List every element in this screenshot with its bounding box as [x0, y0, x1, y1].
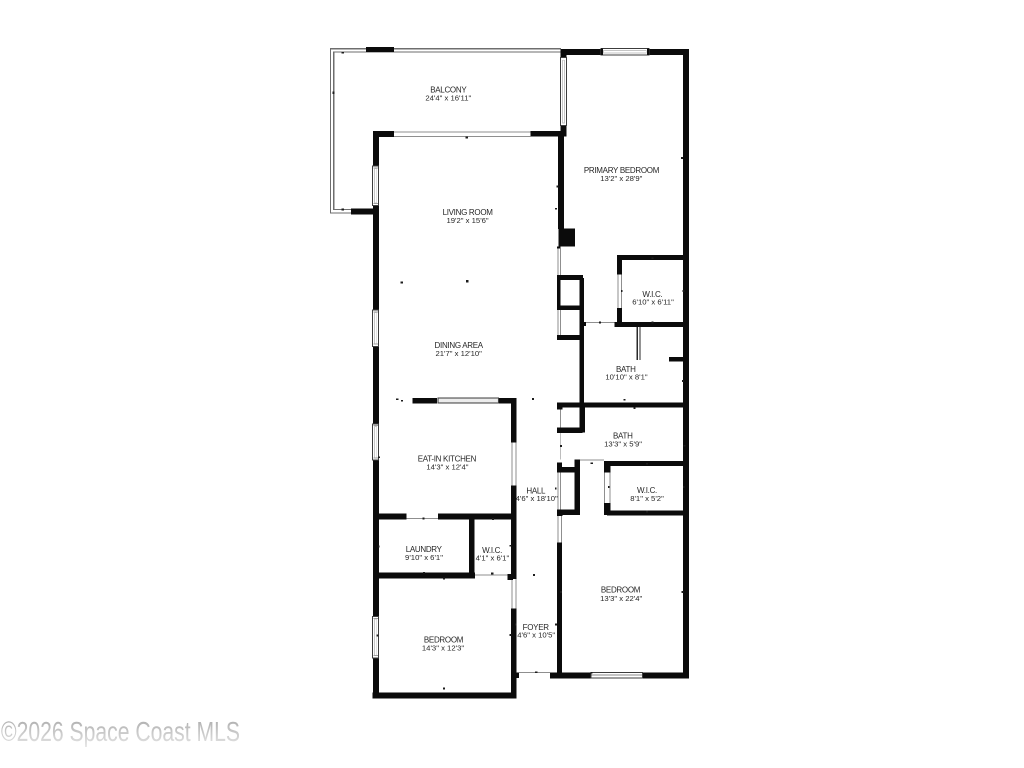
svg-text:13'3" x 5'9": 13'3" x 5'9" [604, 440, 642, 449]
svg-text:13'2" x 28'9": 13'2" x 28'9" [600, 174, 642, 183]
svg-text:14'3" x 12'4": 14'3" x 12'4" [426, 462, 468, 471]
svg-text:24'4" x 16'11": 24'4" x 16'11" [425, 94, 471, 103]
svg-text:4'6" x 10'5": 4'6" x 10'5" [517, 631, 555, 640]
svg-text:©2026 Space Coast MLS: ©2026 Space Coast MLS [1, 716, 240, 747]
svg-text:8'1" x 5'2": 8'1" x 5'2" [630, 494, 664, 503]
svg-text:4'1" x 6'1": 4'1" x 6'1" [476, 553, 510, 562]
svg-text:10'10" x 8'1": 10'10" x 8'1" [605, 373, 647, 382]
svg-text:13'3" x 22'4": 13'3" x 22'4" [600, 594, 642, 603]
svg-text:6'10" x 6'11": 6'10" x 6'11" [632, 298, 674, 307]
svg-text:4'6" x 18'10": 4'6" x 18'10" [516, 494, 558, 503]
svg-text:21'7" x 12'10": 21'7" x 12'10" [435, 349, 482, 358]
svg-text:14'3" x 12'3": 14'3" x 12'3" [422, 643, 464, 652]
svg-text:19'2" x 15'6": 19'2" x 15'6" [447, 216, 489, 225]
svg-text:9'10" x 6'1": 9'10" x 6'1" [405, 553, 443, 562]
